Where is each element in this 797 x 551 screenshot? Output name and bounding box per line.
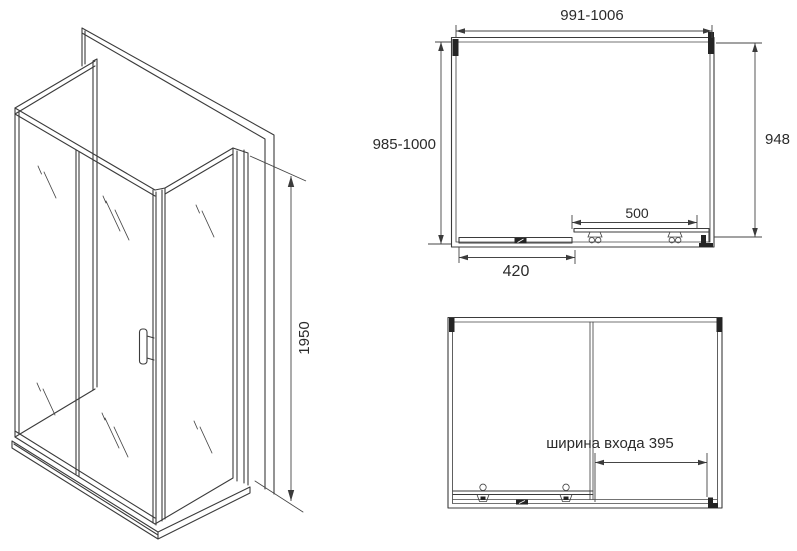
door-handle [140,329,155,364]
wall-bracket-top-left [453,39,459,56]
top-view: 991-1006 985-1000 948 500 420 [373,7,790,280]
rear-glass-panel [82,28,274,494]
dimension-height: 1950 [250,156,313,501]
dimension-width: 991-1006 [456,7,712,38]
dim-door-label: 500 [625,205,649,221]
dim-fixed-panel-label: 420 [503,263,530,280]
dimension-entrance: ширина входа 395 [546,435,707,502]
front-door-assembly [453,484,718,508]
technical-drawing-page: 1950 [0,0,797,551]
glass-marks [37,166,214,457]
roller-icon [668,232,682,243]
corner-bracket [699,235,713,247]
roller-icon [477,484,489,501]
wall-bracket-top-right [708,32,714,54]
roller-icon [588,232,602,243]
dim-side-label: 948 [765,131,790,148]
shower-enclosure-drawing: 1950 [0,0,797,551]
dim-width-label: 991-1006 [560,7,623,24]
front-outline [448,318,722,509]
iso-view: 1950 [12,28,313,539]
dim-depth-label: 985-1000 [373,136,436,153]
wall-bracket-right [717,318,723,332]
door-edge [590,322,593,500]
door-top-bar [453,491,593,495]
plan-door-track [459,229,713,248]
dimension-fixed-panel: 420 [459,247,575,280]
dimension-side: 948 [714,43,790,237]
dim-entrance-label: ширина входа 395 [546,435,674,452]
top-frame [15,61,233,196]
dimension-depth: 985-1000 [373,42,451,244]
dimension-door: 500 [572,205,697,229]
floor-line [255,481,303,512]
dim-height-label: 1950 [296,321,313,354]
roller-icon [560,484,572,501]
wall-bracket-left [449,318,455,332]
plan-outline [452,32,715,247]
front-view: ширина входа 395 [448,318,722,509]
bottom-rails [15,389,233,524]
